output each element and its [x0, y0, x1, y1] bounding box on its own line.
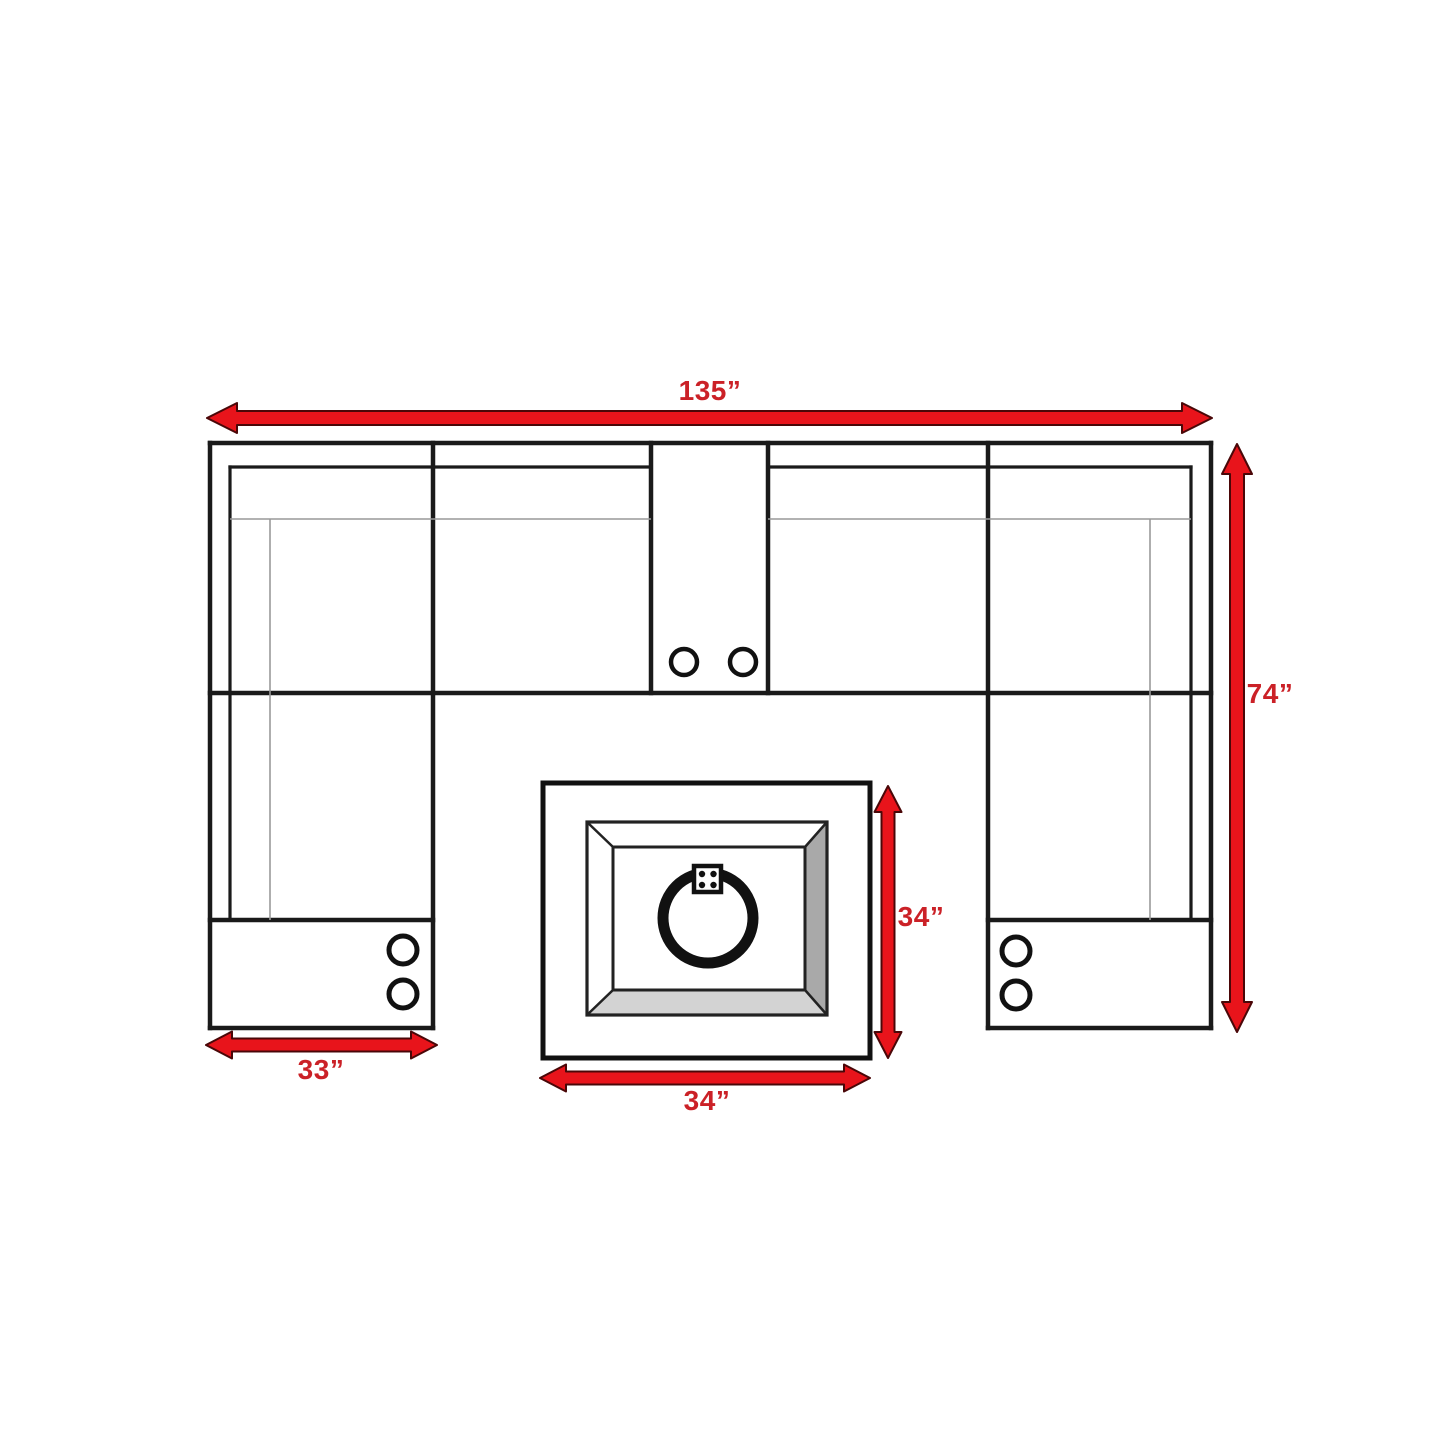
dimension-label-overall-depth: 74”: [1247, 678, 1294, 710]
bowl-bevel-bottom-shaded: [587, 990, 827, 1015]
diagram-canvas: [0, 0, 1445, 1445]
dimension-label-left-section-width: 33”: [298, 1054, 345, 1086]
middle-console-cupholders-icon: [671, 649, 756, 675]
left-console-cupholders-icon: [389, 936, 417, 1008]
sofa-dimension-diagram: 135” 74” 33” 34” 34”: [0, 0, 1445, 1445]
dimension-label-fire-table-width: 34”: [684, 1085, 731, 1117]
dimension-label-overall-width: 135”: [679, 375, 742, 407]
bowl-bevel-right-shaded: [805, 822, 827, 1015]
overall-depth-arrow: [1222, 444, 1252, 1032]
overall-width-arrow: [207, 403, 1212, 433]
fire-pit-table: [543, 783, 870, 1058]
right-console-cupholders-icon: [1002, 937, 1030, 1009]
burner-control-icon: [694, 866, 721, 892]
dimension-label-fire-table-depth: 34”: [898, 901, 945, 933]
